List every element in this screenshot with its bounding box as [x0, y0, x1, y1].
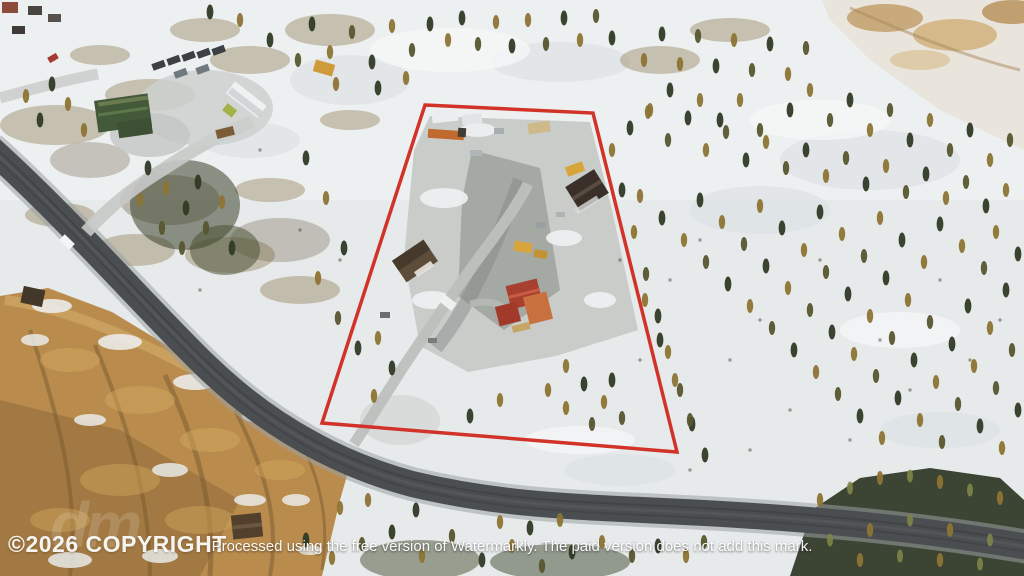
- aerial-photo-svg: [0, 0, 1024, 576]
- photo-viewport: dm ©2026 COPYRIGHT Processed using the f…: [0, 0, 1024, 576]
